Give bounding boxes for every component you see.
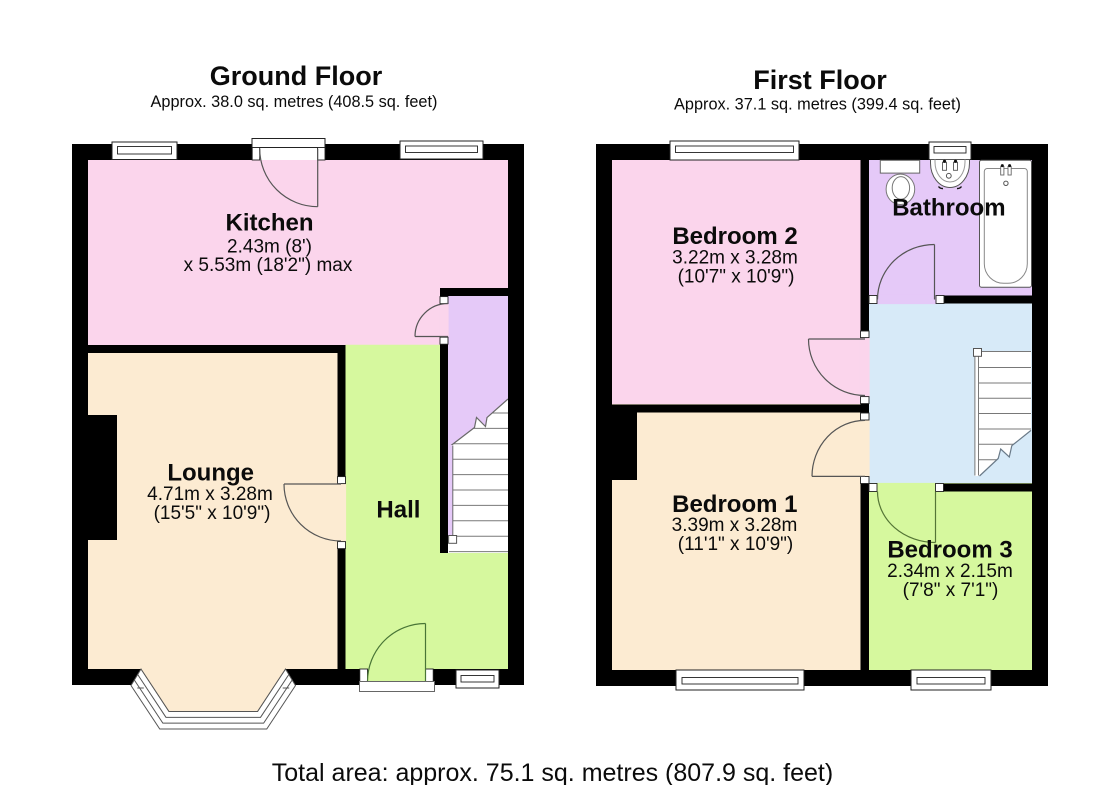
svg-text:(7'8" x 7'1"): (7'8" x 7'1"): [903, 580, 999, 601]
svg-text:Kitchen: Kitchen: [225, 210, 313, 237]
svg-text:3.22m x 3.28m: 3.22m x 3.28m: [672, 248, 798, 269]
svg-text:Bedroom 2: Bedroom 2: [672, 223, 797, 250]
svg-text:3.39m x 3.28m: 3.39m x 3.28m: [672, 515, 798, 536]
svg-text:(15'5" x 10'9"): (15'5" x 10'9"): [154, 503, 271, 524]
svg-text:Bedroom 3: Bedroom 3: [887, 537, 1012, 564]
svg-text:(10'7" x 10'9"): (10'7" x 10'9"): [678, 267, 795, 288]
svg-text:4.71m x 3.28m: 4.71m x 3.28m: [147, 484, 273, 505]
svg-text:Lounge: Lounge: [167, 460, 254, 487]
svg-text:First Floor: First Floor: [753, 65, 887, 95]
svg-text:Hall: Hall: [376, 497, 420, 524]
svg-text:Ground Floor: Ground Floor: [210, 61, 383, 91]
svg-text:Approx. 38.0 sq. metres (408.5: Approx. 38.0 sq. metres (408.5 sq. feet): [151, 93, 438, 111]
svg-text:Bathroom: Bathroom: [892, 195, 1005, 222]
svg-text:(11'1" x 10'9"): (11'1" x 10'9"): [678, 534, 793, 555]
svg-text:x 5.53m (18'2") max: x 5.53m (18'2") max: [184, 255, 353, 276]
svg-text:Approx. 37.1 sq. metres (399.4: Approx. 37.1 sq. metres (399.4 sq. feet): [674, 96, 961, 114]
svg-text:2.34m x 2.15m: 2.34m x 2.15m: [887, 561, 1013, 582]
svg-text:Bedroom 1: Bedroom 1: [672, 491, 797, 518]
svg-text:Total area: approx. 75.1 sq. m: Total area: approx. 75.1 sq. metres (807…: [272, 759, 833, 785]
